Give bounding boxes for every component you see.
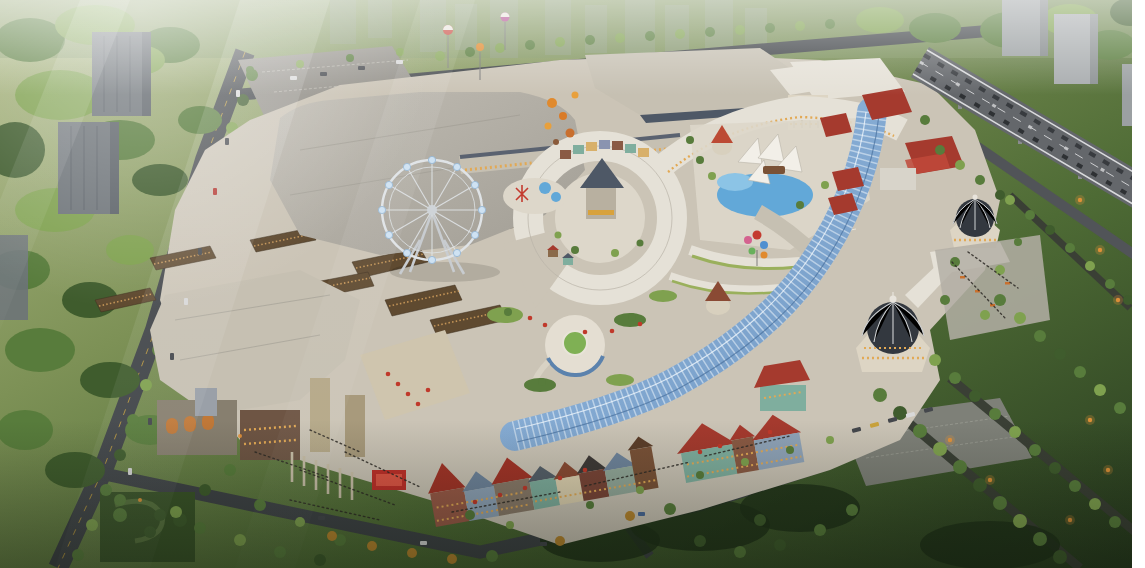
white-shed bbox=[880, 168, 916, 190]
playground-courtyard bbox=[503, 178, 567, 214]
rendering-canvas bbox=[0, 0, 1145, 568]
aerial-rendering bbox=[0, 0, 1145, 568]
dusk-vignette bbox=[0, 420, 1145, 568]
pavilion-green-roof bbox=[563, 331, 587, 355]
right-margin-strip bbox=[1132, 0, 1145, 568]
pirate-ship bbox=[763, 166, 785, 174]
